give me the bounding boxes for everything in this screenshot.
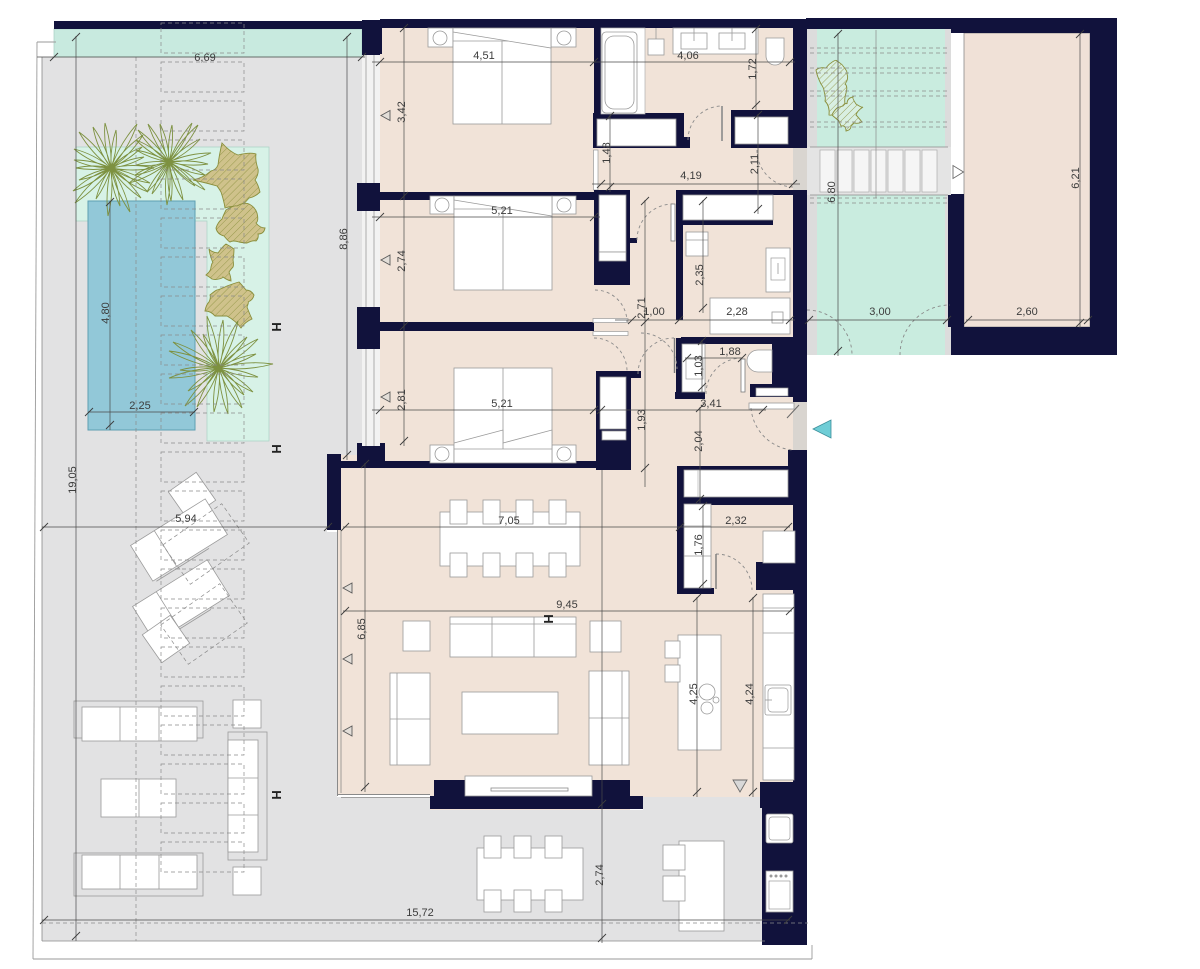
svg-text:15,72: 15,72 (406, 907, 434, 919)
svg-text:4,25: 4,25 (688, 683, 700, 704)
svg-text:4,80: 4,80 (100, 302, 112, 323)
svg-text:7,05: 7,05 (498, 515, 519, 527)
svg-text:6,69: 6,69 (194, 52, 215, 64)
svg-text:H: H (269, 790, 284, 799)
svg-text:4,06: 4,06 (677, 50, 698, 62)
svg-text:H: H (269, 322, 284, 331)
svg-text:2,32: 2,32 (725, 515, 746, 527)
svg-text:4,19: 4,19 (680, 170, 701, 182)
svg-text:3,41: 3,41 (700, 398, 721, 410)
svg-text:H: H (269, 444, 284, 453)
svg-text:2,74: 2,74 (594, 864, 606, 885)
svg-text:6,80: 6,80 (826, 181, 838, 202)
svg-text:8,86: 8,86 (338, 228, 350, 249)
svg-text:2,35: 2,35 (694, 264, 706, 285)
svg-text:4,24: 4,24 (744, 683, 756, 704)
svg-text:5,94: 5,94 (175, 513, 196, 525)
svg-text:2,81: 2,81 (396, 389, 408, 410)
svg-text:19,05: 19,05 (67, 466, 79, 494)
svg-text:1,48: 1,48 (601, 142, 613, 163)
svg-text:1,76: 1,76 (693, 534, 705, 555)
svg-text:H: H (541, 614, 556, 623)
svg-text:1,72: 1,72 (747, 58, 759, 79)
svg-text:3,42: 3,42 (396, 101, 408, 122)
svg-text:2,60: 2,60 (1016, 306, 1037, 318)
svg-text:5,21: 5,21 (491, 205, 512, 217)
svg-text:6,21: 6,21 (1070, 167, 1082, 188)
svg-text:2,25: 2,25 (129, 400, 150, 412)
svg-text:5,21: 5,21 (491, 398, 512, 410)
svg-text:2,71: 2,71 (636, 297, 648, 318)
svg-text:2,04: 2,04 (693, 430, 705, 451)
svg-text:2,11: 2,11 (749, 154, 761, 175)
svg-text:1,03: 1,03 (693, 355, 705, 376)
svg-text:1,93: 1,93 (636, 409, 648, 430)
svg-text:1,88: 1,88 (719, 346, 740, 358)
svg-text:2,28: 2,28 (726, 306, 747, 318)
svg-text:4,51: 4,51 (473, 50, 494, 62)
svg-text:6,85: 6,85 (356, 618, 368, 639)
svg-text:3,00: 3,00 (869, 306, 890, 318)
svg-text:2,74: 2,74 (396, 250, 408, 271)
svg-text:9,45: 9,45 (556, 599, 577, 611)
